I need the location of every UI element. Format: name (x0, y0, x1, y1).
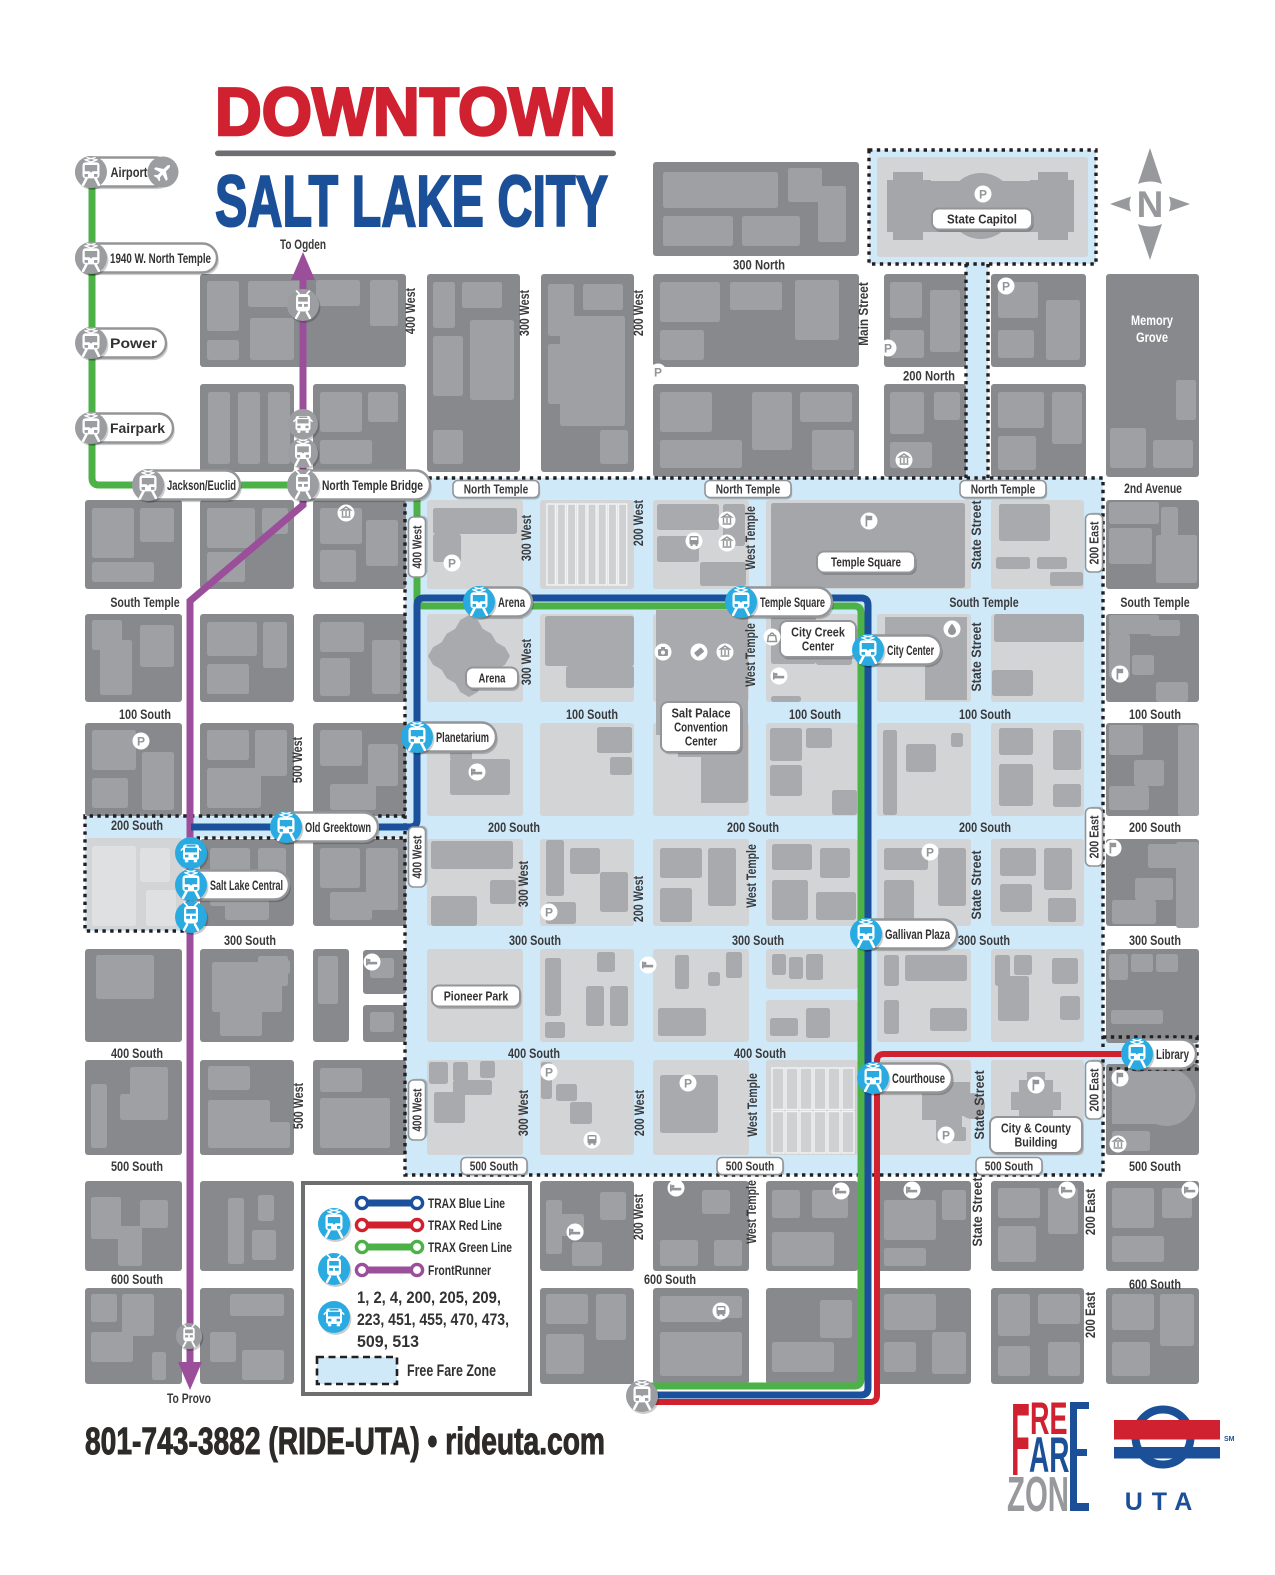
svg-text:Building: Building (1015, 1135, 1058, 1149)
svg-text:1940 W. North Temple: 1940 W. North Temple (110, 250, 211, 266)
svg-text:Memory: Memory (1131, 312, 1173, 328)
svg-text:N: N (1137, 184, 1164, 225)
svg-text:West Temple: West Temple (743, 623, 758, 687)
svg-text:400 South: 400 South (734, 1046, 786, 1061)
svg-text:300 West: 300 West (516, 1090, 531, 1137)
svg-text:600 South: 600 South (1129, 1277, 1181, 1292)
svg-text:Old Greektown: Old Greektown (305, 819, 371, 835)
svg-text:West Temple: West Temple (743, 506, 758, 570)
svg-text:TRAX Red Line: TRAX Red Line (428, 1218, 502, 1233)
svg-text:SM: SM (1224, 1436, 1235, 1443)
svg-text:P: P (448, 557, 456, 571)
svg-text:400 West: 400 West (410, 1088, 424, 1132)
svg-text:UTA: UTA (1125, 1488, 1202, 1516)
svg-text:100 South: 100 South (959, 707, 1011, 722)
svg-text:Main Street: Main Street (856, 282, 871, 346)
svg-text:200 East: 200 East (1087, 1068, 1101, 1112)
svg-text:200 South: 200 South (959, 820, 1011, 835)
svg-text:100 South: 100 South (789, 707, 841, 722)
svg-text:Library: Library (1156, 1046, 1189, 1062)
svg-text:North Temple: North Temple (971, 482, 1036, 496)
svg-text:Power: Power (110, 335, 158, 351)
svg-text:500 West: 500 West (291, 1083, 306, 1130)
svg-text:P: P (684, 1077, 692, 1091)
svg-text:City Center: City Center (887, 642, 934, 658)
svg-text:100 South: 100 South (566, 707, 618, 722)
svg-text:300 South: 300 South (1129, 933, 1181, 948)
svg-text:TRAX Blue Line: TRAX Blue Line (428, 1196, 505, 1211)
svg-text:300 South: 300 South (958, 933, 1010, 948)
svg-text:South Temple: South Temple (110, 595, 180, 610)
svg-text:400 South: 400 South (508, 1046, 560, 1061)
svg-text:Grove: Grove (1136, 329, 1168, 345)
svg-text:500 South: 500 South (985, 1159, 1033, 1173)
svg-text:Salt Palace: Salt Palace (671, 706, 730, 720)
svg-text:ZON: ZON (1007, 1466, 1069, 1522)
svg-text:500 South: 500 South (111, 1159, 163, 1174)
svg-text:State Street: State Street (972, 1070, 987, 1140)
svg-text:509, 513: 509, 513 (357, 1333, 419, 1351)
svg-text:DOWNTOWN: DOWNTOWN (215, 74, 616, 150)
svg-text:801-743-3882 (RIDE-UTA) • ride: 801-743-3882 (RIDE-UTA) • rideuta.com (85, 1421, 605, 1463)
svg-text:400 South: 400 South (111, 1046, 163, 1061)
svg-text:P: P (884, 342, 892, 356)
svg-text:TRAX Green Line: TRAX Green Line (428, 1240, 512, 1255)
svg-text:200 South: 200 South (727, 820, 779, 835)
svg-text:200 South: 200 South (111, 818, 163, 833)
svg-text:South Temple: South Temple (949, 595, 1019, 610)
svg-text:Airport: Airport (111, 164, 148, 180)
svg-text:State Street: State Street (970, 1177, 985, 1247)
svg-text:Courthouse: Courthouse (892, 1070, 945, 1086)
svg-text:400 West: 400 West (410, 525, 424, 569)
svg-text:200 West: 200 West (631, 290, 646, 337)
svg-text:Center: Center (802, 639, 834, 653)
svg-text:P: P (545, 1066, 553, 1080)
svg-text:State Street: State Street (969, 850, 984, 920)
svg-text:200 East: 200 East (1083, 1291, 1098, 1338)
svg-text:Salt Lake Central: Salt Lake Central (210, 877, 283, 893)
svg-text:300 South: 300 South (509, 933, 561, 948)
svg-text:Fairpark: Fairpark (110, 420, 165, 436)
svg-text:200 North: 200 North (903, 369, 955, 384)
svg-text:P: P (1002, 280, 1010, 294)
svg-text:North Temple Bridge: North Temple Bridge (322, 477, 423, 493)
svg-text:300 North: 300 North (733, 258, 785, 273)
svg-text:300 South: 300 South (732, 933, 784, 948)
svg-text:300 West: 300 West (519, 639, 534, 686)
svg-text:Planetarium: Planetarium (436, 729, 489, 745)
svg-text:1, 2, 4, 200, 205, 209,: 1, 2, 4, 200, 205, 209, (357, 1289, 501, 1307)
svg-text:200 West: 200 West (632, 1090, 647, 1137)
svg-text:Gallivan Plaza: Gallivan Plaza (885, 926, 950, 942)
svg-text:SALT LAKE CITY: SALT LAKE CITY (215, 162, 608, 242)
svg-text:Arena: Arena (498, 594, 525, 610)
svg-text:223, 451, 455, 470, 473,: 223, 451, 455, 470, 473, (357, 1311, 509, 1329)
svg-text:Arena: Arena (479, 671, 507, 685)
svg-text:North Temple: North Temple (464, 482, 529, 496)
svg-text:State Street: State Street (969, 500, 984, 570)
svg-text:200 South: 200 South (1129, 820, 1181, 835)
svg-text:200 West: 200 West (631, 1194, 646, 1241)
svg-text:State Capitol: State Capitol (947, 212, 1017, 226)
svg-text:Center: Center (685, 734, 717, 748)
svg-text:City & County: City & County (1001, 1121, 1071, 1135)
svg-text:P: P (545, 906, 553, 920)
svg-text:200 West: 200 West (631, 876, 646, 923)
svg-text:100 South: 100 South (119, 707, 171, 722)
svg-text:500 South: 500 South (470, 1159, 518, 1173)
svg-text:P: P (926, 846, 934, 860)
svg-text:200 East: 200 East (1083, 1188, 1098, 1235)
svg-text:Jackson/Euclid: Jackson/Euclid (167, 477, 236, 493)
svg-text:500 South: 500 South (1129, 1159, 1181, 1174)
svg-text:P: P (979, 188, 987, 202)
svg-text:Free Fare Zone: Free Fare Zone (407, 1362, 496, 1380)
svg-text:City Creek: City Creek (791, 625, 845, 639)
svg-text:100 South: 100 South (1129, 707, 1181, 722)
svg-text:300 West: 300 West (516, 861, 531, 908)
svg-text:To Provo: To Provo (167, 1391, 211, 1406)
svg-text:Convention: Convention (674, 720, 728, 734)
svg-text:400 West: 400 West (403, 288, 418, 335)
svg-text:West Temple: West Temple (744, 1180, 759, 1244)
svg-text:State Street: State Street (969, 622, 984, 692)
svg-text:200 West: 200 West (631, 500, 646, 547)
svg-text:400 West: 400 West (410, 835, 424, 879)
svg-text:300 West: 300 West (517, 290, 532, 337)
svg-text:600 South: 600 South (644, 1272, 696, 1287)
svg-text:300 West: 300 West (519, 515, 534, 562)
svg-text:South Temple: South Temple (1120, 595, 1190, 610)
svg-text:FrontRunner: FrontRunner (428, 1263, 492, 1278)
svg-text:West Temple: West Temple (745, 1073, 760, 1137)
svg-text:North Temple: North Temple (716, 482, 781, 496)
svg-text:West Temple: West Temple (744, 844, 759, 908)
svg-text:P: P (942, 1129, 950, 1143)
svg-text:2nd Avenue: 2nd Avenue (1124, 481, 1182, 496)
svg-text:600 South: 600 South (111, 1272, 163, 1287)
svg-text:300 South: 300 South (224, 933, 276, 948)
svg-text:200 East: 200 East (1087, 815, 1101, 859)
svg-text:200 South: 200 South (488, 820, 540, 835)
svg-text:500 South: 500 South (726, 1159, 774, 1173)
svg-text:Pioneer Park: Pioneer Park (444, 989, 509, 1003)
svg-text:Temple Square: Temple Square (760, 594, 825, 610)
svg-text:500 West: 500 West (290, 737, 305, 784)
svg-text:200 East: 200 East (1087, 521, 1101, 565)
svg-text:P: P (654, 366, 662, 380)
svg-text:P: P (137, 735, 145, 749)
svg-text:Temple Square: Temple Square (831, 555, 901, 569)
